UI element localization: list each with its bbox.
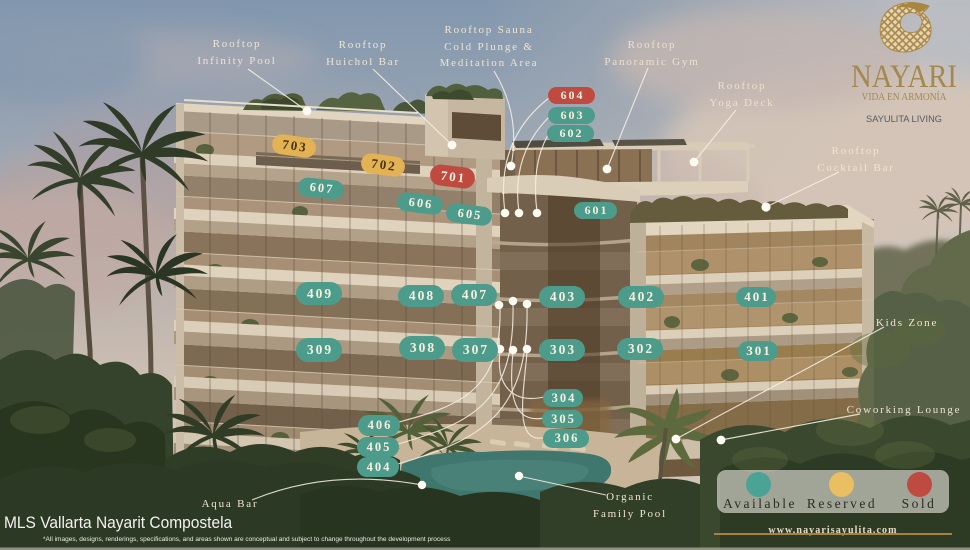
svg-text:VIDA EN ARMONÍA: VIDA EN ARMONÍA [862, 91, 947, 103]
svg-text:SAYULITA LIVING: SAYULITA LIVING [866, 114, 942, 125]
svg-text:NAYARI: NAYARI [851, 59, 957, 95]
